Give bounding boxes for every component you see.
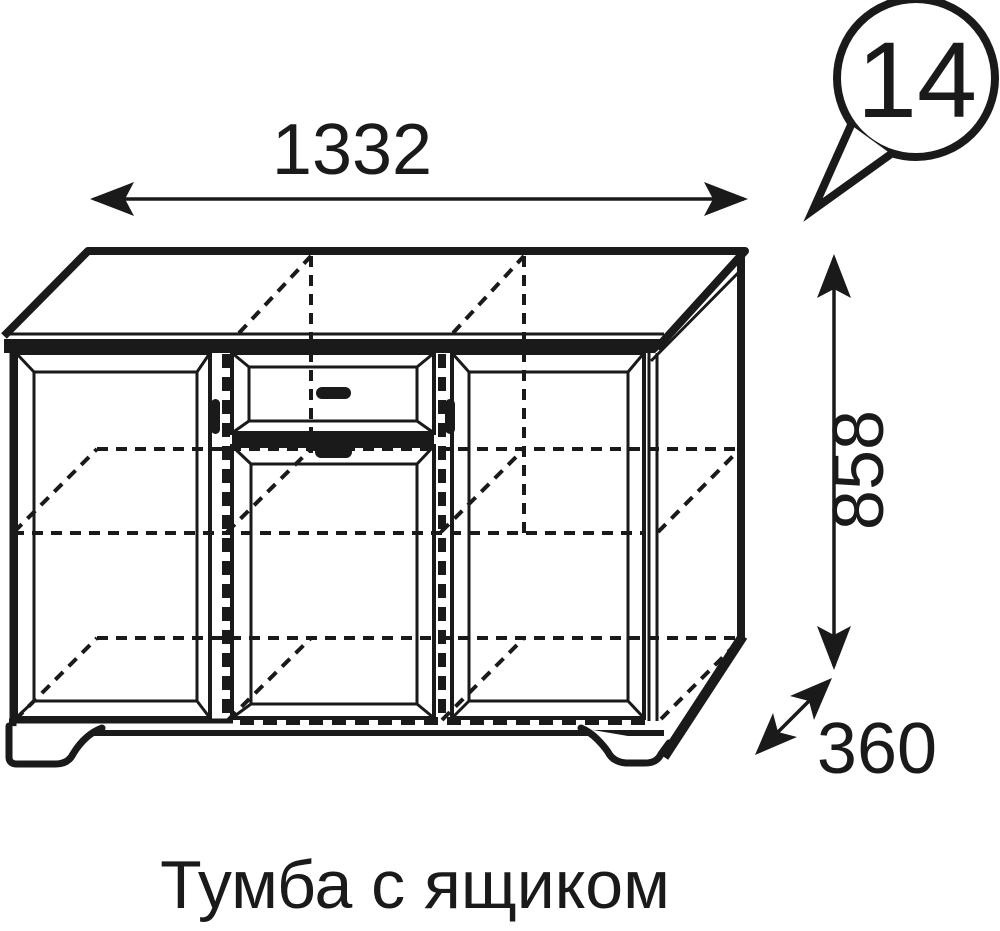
side-plinth: [664, 636, 743, 757]
middle-door: [232, 446, 434, 718]
middle-door-handle: [315, 446, 352, 458]
cabinet-technical-drawing: 1332 858 360 14 Тумба с ящиком: [0, 0, 1000, 931]
width-dimension: 1332: [90, 110, 748, 216]
left-door: [16, 353, 210, 718]
depth-dimension-value: 360: [817, 709, 937, 789]
depth-dimension: 360: [755, 678, 937, 789]
left-door-handle: [211, 399, 220, 434]
item-number: 14: [857, 19, 977, 140]
caption: Тумба с ящиком: [160, 847, 670, 923]
cabinet-top-panel: [4, 251, 745, 353]
top-front-band: [4, 339, 670, 353]
right-door-handle: [445, 399, 455, 434]
drawer-front: [232, 353, 434, 446]
right-door: [452, 353, 644, 718]
cabinet-drawing: [4, 251, 745, 764]
technical-drawing-page: 1332 858 360 14 Тумба с ящиком: [0, 0, 1000, 931]
left-foot: [9, 726, 102, 764]
height-dimension: 858: [817, 254, 899, 670]
drawer-handle: [316, 387, 351, 399]
item-callout: 14: [813, 0, 995, 210]
width-dimension-value: 1332: [272, 110, 432, 190]
height-dimension-value: 858: [819, 410, 899, 530]
